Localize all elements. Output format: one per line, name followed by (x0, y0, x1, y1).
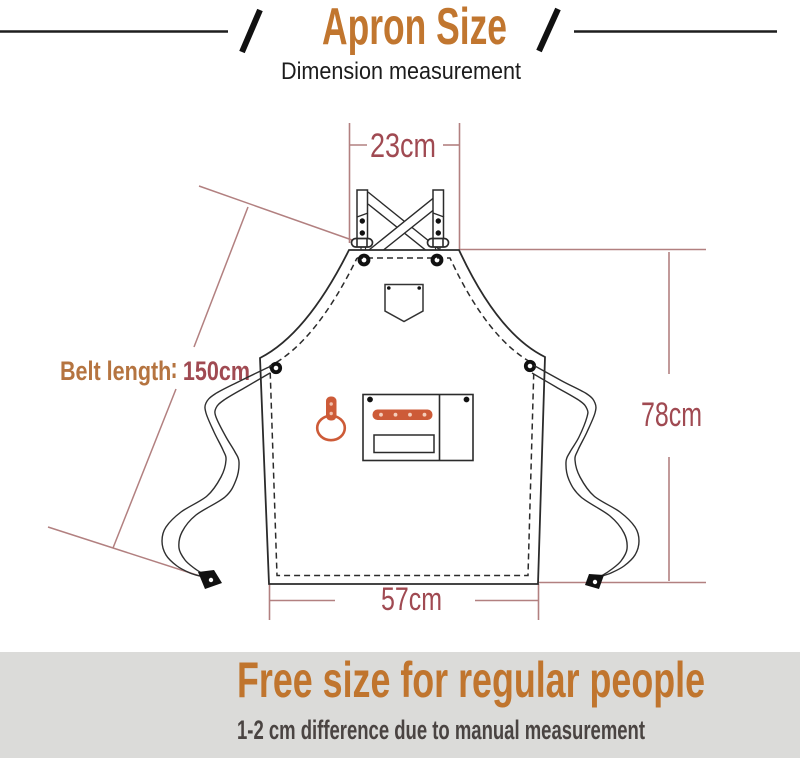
svg-text:Apron Size: Apron Size (322, 0, 507, 56)
svg-text:78cm: 78cm (641, 396, 702, 434)
svg-text:Belt length∶ 150cm: Belt length∶ 150cm (60, 356, 250, 386)
svg-text:23cm: 23cm (370, 127, 436, 165)
svg-text:Dimension measurement: Dimension measurement (281, 58, 521, 85)
svg-text:57cm: 57cm (381, 581, 442, 617)
svg-text:1-2 cm difference due to manua: 1-2 cm difference due to manual measurem… (237, 715, 645, 745)
svg-text:Free size for regular people: Free size for regular people (237, 652, 705, 708)
